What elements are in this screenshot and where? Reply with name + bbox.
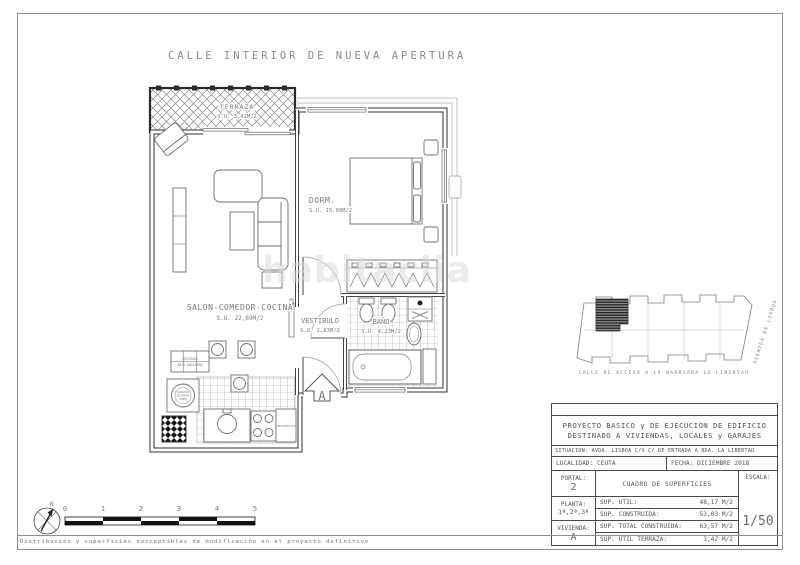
bano-label: BAÑO	[373, 317, 390, 326]
surface-row-label: SUP. TOTAL CONSTRUIDA:	[600, 523, 682, 530]
footer-divider	[17, 535, 783, 536]
dorm-label: DORM.	[309, 196, 336, 205]
bedroom-furniture	[347, 140, 438, 292]
surface-row: SUP. CONSTRUIDA: 53,03 M/2	[596, 509, 739, 521]
surface-row: SUP. TOTAL CONSTRUIDA: 63,57 M/2	[596, 521, 739, 533]
sideboard	[173, 188, 186, 272]
planta-label: PLANTA:	[561, 501, 586, 508]
site-plan: CALLE DE ACCESO A LA BARRIADA LA LIBERTA…	[577, 295, 779, 376]
fecha-cell: FECHA: DICIEMBRE 2018	[666, 457, 777, 470]
terraza-area: S.U. 3,42M/2	[217, 114, 257, 120]
bed	[350, 158, 422, 224]
dorm-area: S.U. 15,00M/2	[309, 208, 352, 214]
lavadora-label-1: LAVADORA	[177, 390, 190, 394]
situacion-row: SITUACION: AVDA. LISBOA C/V C/ DE ENTRAD…	[552, 446, 777, 457]
planta-cell: PLANTA: 1ª,2ª,3ª	[552, 497, 596, 521]
surface-row-value: 63,57 M/2	[699, 523, 733, 530]
scale-tick-3: 3	[177, 505, 181, 513]
tv-table	[230, 212, 254, 250]
vivienda-value: A	[570, 532, 576, 543]
fecha-value: DICIEMBRE 2018	[697, 460, 749, 467]
lavadora-label-2: SECADORA	[177, 394, 190, 398]
salon-label: SALON-COMEDOR-COCINA	[187, 303, 293, 312]
bathtub	[349, 350, 421, 384]
portal-value: 2	[570, 482, 576, 493]
kitchen-sink	[204, 409, 250, 442]
siteplan-street-bottom: CALLE DE ACCESO A LA BARRIADA LA LIBERTA…	[579, 370, 750, 376]
scale-tick-5: 5	[253, 505, 257, 513]
fecha-label: FECHA:	[671, 460, 693, 467]
scale-tick-4: 4	[215, 505, 219, 513]
residuos-label-2: BAJO ENCIMERA	[178, 363, 203, 367]
salon-area: S.U. 22,69M/2	[217, 315, 264, 322]
entrance-marker-letter: A	[318, 389, 326, 403]
washbasin	[407, 323, 421, 345]
bedroom-door	[303, 257, 341, 295]
coffee-table	[214, 170, 262, 202]
project-title-line2: DESTINADO A VIVIENDAS, LOCALES y GARAJES	[568, 431, 762, 441]
vestibulo-label: VESTIBULO	[301, 317, 339, 325]
stove	[251, 411, 276, 441]
drawing-sheet: A TERRAZA S.U. 3,42M/2 SALON-COMEDOR-COC…	[0, 0, 800, 565]
nightstand	[424, 140, 438, 155]
localidad-cell: LOCALIDAD: CEUTA	[552, 457, 666, 470]
portal-label: PORTAL:	[561, 475, 586, 482]
siteplan-street-right: AVENIDA DE LISBOA	[752, 299, 779, 365]
lavadora-label-3: TERMO	[179, 397, 187, 401]
wardrobe	[347, 260, 437, 292]
scale-tick-0: 0	[63, 505, 67, 513]
bano-area: S.U. 4,23M/2	[361, 329, 401, 335]
surface-row-value: 48,17 M/2	[699, 499, 733, 506]
street-title: CALLE INTERIOR DE NUEVA APERTURA	[168, 50, 448, 62]
north-label: N	[50, 501, 54, 508]
entrance-marker: A	[305, 374, 339, 403]
localidad-fecha-row: LOCALIDAD: CEUTA FECHA: DICIEMBRE 2018	[552, 457, 777, 471]
localidad-label: LOCALIDAD:	[556, 460, 593, 467]
localidad-value: CEUTA	[597, 460, 616, 467]
surface-row: SUP. UTIL: 48,17 M/2	[596, 497, 739, 509]
sofa	[258, 198, 288, 270]
residuos-label-1: RESIDUOS	[182, 357, 197, 361]
scale-tick-2: 2	[139, 505, 143, 513]
bath-cabinet	[408, 297, 432, 321]
dining-chair	[238, 341, 255, 358]
vivienda-cell: VIVIENDA: A	[552, 521, 596, 546]
surface-row-value: 53,03 M/2	[699, 511, 733, 518]
escala-label: ESCALA:	[745, 474, 770, 481]
scale-tick-1: 1	[101, 505, 105, 513]
project-title-line1: PROYECTO BASICO y DE EJECUCION DE EDIFIC…	[563, 421, 767, 431]
surface-row-value: 3,42 M/2	[703, 536, 733, 543]
vestibulo-area: S.U. 2,83M/2	[300, 328, 340, 334]
disclaimer-text: Distribución y superficies susceptibles …	[20, 539, 369, 545]
vivienda-label: VIVIENDA:	[557, 525, 590, 532]
title-block-empty-row	[552, 404, 777, 416]
cuadro-title: CUADRO DE SUPERFICIES	[596, 471, 739, 497]
north-compass: N	[34, 501, 60, 534]
terraza-label: TERRAZA	[220, 103, 254, 111]
escala-cell: ESCALA:	[739, 471, 777, 497]
planta-value: 1ª,2ª,3ª	[558, 508, 589, 516]
title-block: PROYECTO BASICO y DE EJECUCION DE EDIFIC…	[551, 403, 778, 546]
project-title: PROYECTO BASICO y DE EJECUCION DE EDIFIC…	[552, 416, 777, 446]
dining-chair	[209, 341, 226, 358]
bath-shelf	[423, 349, 436, 384]
frigorifico-label: FRIGORIFICO	[277, 424, 296, 428]
nightstand	[424, 227, 438, 242]
surface-row-label: SUP. CONSTRUIDA:	[600, 511, 660, 518]
ac-unit	[449, 176, 461, 198]
dining-chair	[231, 375, 248, 392]
side-table	[262, 272, 282, 288]
portal-cell: PORTAL: 2	[552, 471, 596, 497]
deco-tile	[162, 416, 186, 442]
escala-value: 1/50	[739, 497, 777, 546]
residuos-cabinet	[171, 351, 209, 372]
surface-row-label: SUP. UTIL TERRAZA:	[600, 536, 667, 543]
scale-bar: 0 1 2 3 4 5	[63, 505, 257, 525]
living-furniture	[154, 122, 288, 288]
surface-row-label: SUP. UTIL:	[600, 499, 637, 506]
